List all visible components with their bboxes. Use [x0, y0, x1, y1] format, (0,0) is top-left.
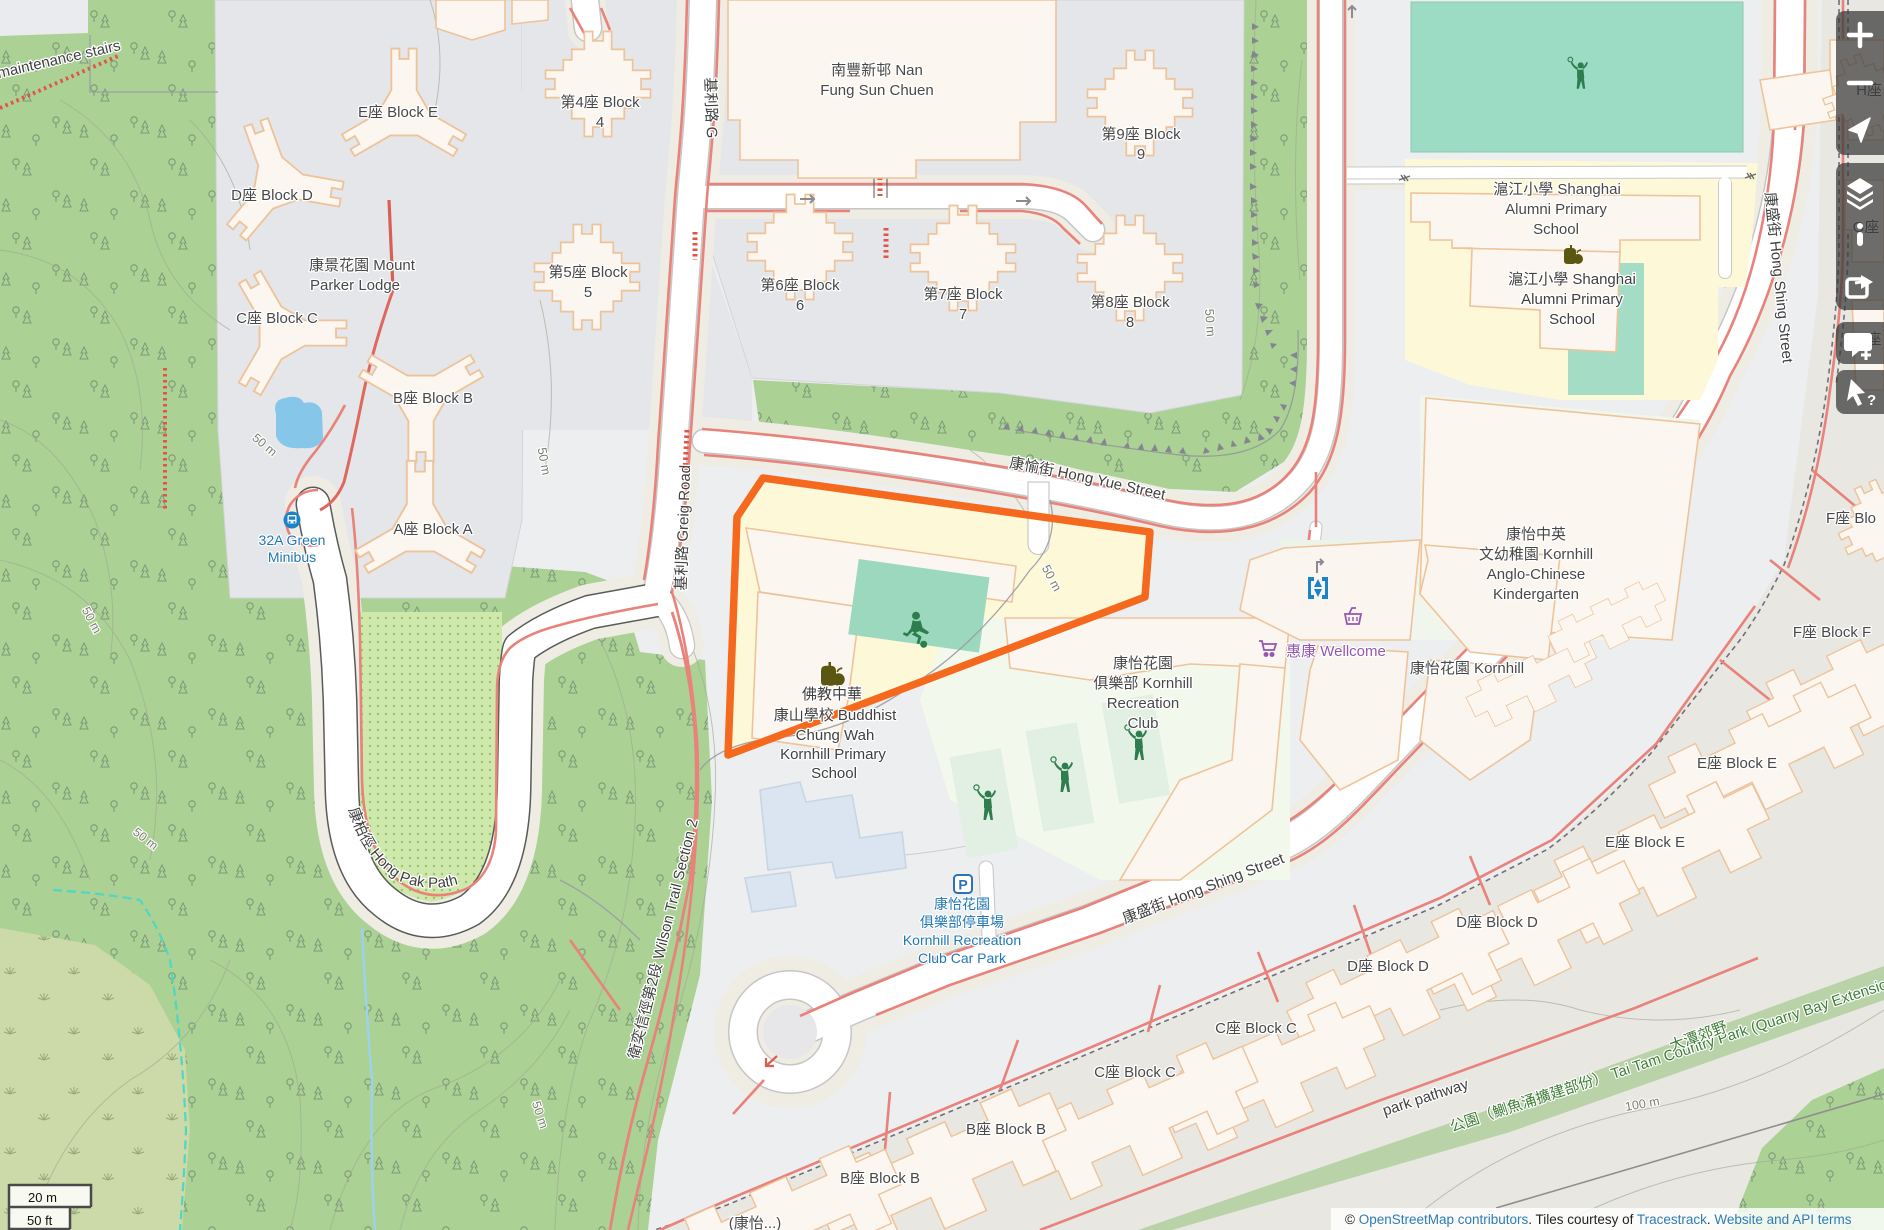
svg-text:Anglo-Chinese: Anglo-Chinese	[1487, 566, 1585, 583]
svg-text:D座 Block D: D座 Block D	[1347, 958, 1429, 975]
svg-text:第4座 Block: 第4座 Block	[560, 93, 640, 111]
svg-text:E座 Block E: E座 Block E	[1697, 755, 1777, 772]
svg-text:C座 Block C: C座 Block C	[1215, 1020, 1297, 1037]
svg-text:俱樂部 Kornhill: 俱樂部 Kornhill	[1093, 675, 1192, 692]
svg-text:基利路 G: 基利路 G	[701, 77, 720, 138]
svg-text:康怡花園: 康怡花園	[934, 896, 990, 912]
svg-text:Chung Wah: Chung Wah	[796, 727, 875, 744]
svg-text:F座 Blo: F座 Blo	[1826, 510, 1876, 527]
svg-text:滬江小學 Shanghai: 滬江小學 Shanghai	[1493, 180, 1621, 198]
svg-text:?: ?	[1867, 392, 1876, 409]
svg-text:32A Green: 32A Green	[259, 532, 326, 548]
svg-text:School: School	[811, 765, 857, 782]
svg-text:Recreation: Recreation	[1107, 695, 1180, 712]
svg-text:5: 5	[584, 284, 592, 301]
svg-text:School: School	[1533, 221, 1579, 238]
svg-text:康怡中英: 康怡中英	[1506, 525, 1566, 543]
svg-text:Parker Lodge: Parker Lodge	[310, 277, 400, 294]
svg-text:20 m: 20 m	[28, 1190, 57, 1205]
svg-text:50 m: 50 m	[1202, 308, 1218, 337]
svg-text:Minibus: Minibus	[268, 549, 316, 565]
svg-text:6: 6	[796, 297, 804, 314]
svg-text:B座 Block B: B座 Block B	[966, 1121, 1046, 1138]
svg-text:康怡花園: 康怡花園	[1113, 655, 1173, 672]
svg-text:D座 Block D: D座 Block D	[231, 187, 313, 204]
svg-text:第6座 Block: 第6座 Block	[760, 276, 840, 294]
svg-text:50 ft: 50 ft	[27, 1213, 53, 1228]
svg-text:7: 7	[959, 306, 967, 323]
svg-text:8: 8	[1126, 314, 1134, 331]
svg-text:School: School	[1549, 311, 1595, 328]
svg-text:(康怡...): (康怡...)	[729, 1215, 782, 1230]
svg-text:Alumni Primary: Alumni Primary	[1505, 201, 1607, 218]
svg-text:P: P	[958, 877, 967, 893]
svg-text:Kornhill Primary: Kornhill Primary	[780, 746, 886, 763]
svg-text:Club Car Park: Club Car Park	[918, 950, 1007, 966]
svg-text:B座 Block B: B座 Block B	[393, 390, 473, 407]
svg-text:D座 Block D: D座 Block D	[1456, 914, 1538, 931]
svg-text:文幼稚園 Kornhill: 文幼稚園 Kornhill	[1479, 546, 1593, 563]
svg-text:Alumni Primary: Alumni Primary	[1521, 291, 1623, 308]
svg-text:E座 Block E: E座 Block E	[358, 104, 438, 121]
svg-text:第8座 Block: 第8座 Block	[1090, 293, 1170, 311]
svg-text:C座 Block C: C座 Block C	[1094, 1064, 1176, 1081]
svg-text:Kindergarten: Kindergarten	[1493, 586, 1579, 603]
svg-text:9: 9	[1137, 146, 1145, 163]
svg-text:惠康 Wellcome: 惠康 Wellcome	[1286, 643, 1386, 660]
svg-text:E座 Block E: E座 Block E	[1605, 834, 1685, 851]
svg-text:4: 4	[596, 114, 604, 131]
svg-text:康景花園 Mount: 康景花園 Mount	[309, 257, 416, 274]
svg-text:F座 Block F: F座 Block F	[1793, 624, 1871, 641]
svg-text:Fung Sun Chuen: Fung Sun Chuen	[820, 82, 933, 99]
svg-text:滬江小學 Shanghai: 滬江小學 Shanghai	[1508, 270, 1636, 288]
svg-text:A座 Block A: A座 Block A	[393, 521, 472, 538]
svg-text:南豐新邨 Nan: 南豐新邨 Nan	[831, 62, 923, 79]
svg-text:第9座 Block: 第9座 Block	[1101, 125, 1181, 143]
svg-text:C座 Block C: C座 Block C	[236, 310, 318, 327]
svg-text:B座 Block B: B座 Block B	[840, 1170, 920, 1187]
svg-text:康怡花園 Kornhill: 康怡花園 Kornhill	[1410, 660, 1524, 677]
svg-text:佛教中華: 佛教中華	[802, 686, 862, 703]
svg-text:第7座 Block: 第7座 Block	[923, 285, 1003, 303]
svg-text:俱樂部停車場: 俱樂部停車場	[920, 914, 1004, 930]
svg-text:Kornhill Recreation: Kornhill Recreation	[903, 932, 1021, 948]
svg-text:© OpenStreetMap contributors.: © OpenStreetMap contributors. Tiles cour…	[1345, 1212, 1852, 1227]
svg-text:Club: Club	[1128, 715, 1159, 732]
svg-text:康山學校 Buddhist: 康山學校 Buddhist	[774, 706, 897, 724]
svg-text:第5座 Block: 第5座 Block	[548, 263, 628, 281]
